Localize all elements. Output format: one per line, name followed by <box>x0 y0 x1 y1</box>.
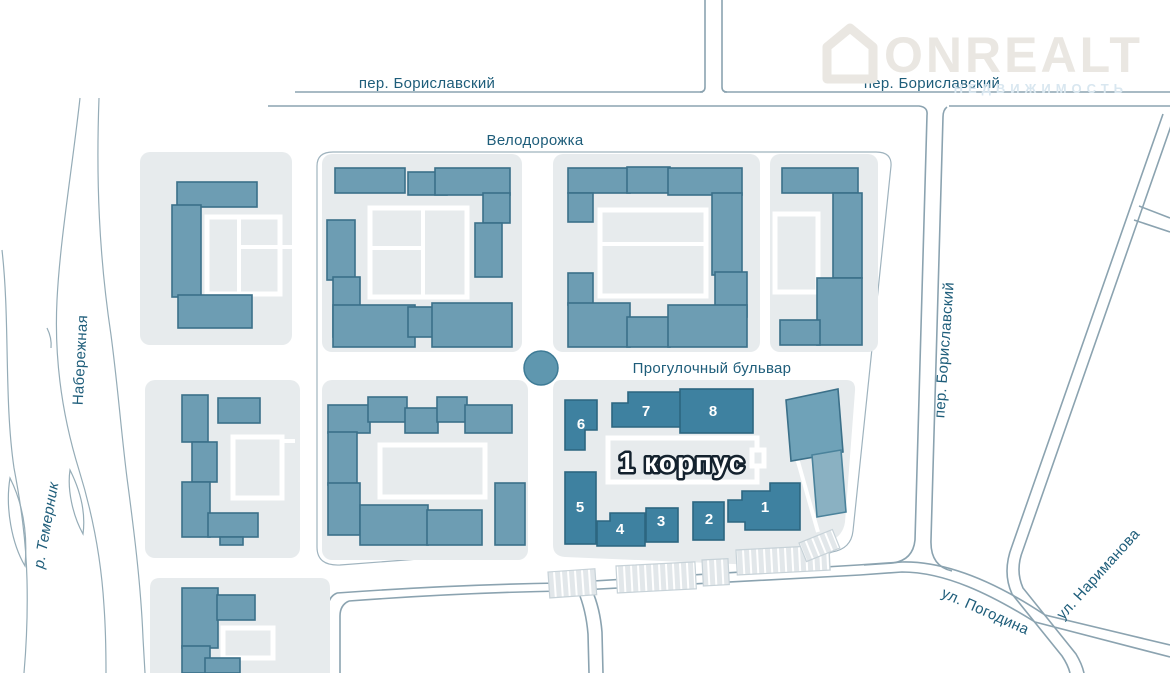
street-label-narimanova: ул. Нариманова <box>1053 525 1143 623</box>
korpus-1-label: 1 корпус <box>619 447 746 478</box>
block-mid-left <box>145 380 300 558</box>
site-plan-map: 6 7 8 5 4 3 2 1 1 корпус пер. Бориславск… <box>0 0 1170 673</box>
building-6-number: 6 <box>577 416 585 433</box>
building-8-number: 8 <box>709 403 717 420</box>
street-label-borislavsky-left: пер. Бориславский <box>359 75 495 92</box>
site-plan-screenshot: 6 7 8 5 4 3 2 1 1 корпус пер. Бориславск… <box>0 0 1170 673</box>
building-3-number: 3 <box>657 513 665 530</box>
building-4-number: 4 <box>616 521 625 538</box>
river-label-temernik: р. Темерник <box>30 480 62 571</box>
block-top-right <box>770 154 878 352</box>
logo-title: ONREALT <box>884 27 1143 83</box>
block-top-mid-right <box>553 154 760 352</box>
street-label-velodorozhka: Велодорожка <box>487 132 584 149</box>
street-label-naberezhnaya: Набережная <box>70 315 92 406</box>
angled-building-upper <box>786 389 843 461</box>
building-7-number: 7 <box>642 403 650 420</box>
building-2-number: 2 <box>705 511 713 528</box>
block-mid-middle <box>322 380 528 560</box>
street-label-progulochny-bulvar: Прогулочный бульвар <box>633 360 792 377</box>
street-label-borislavsky-vertical: пер. Бориславский <box>931 281 957 418</box>
house-icon <box>827 28 873 79</box>
roundabout <box>524 351 558 385</box>
building-1-number: 1 <box>761 499 769 516</box>
logo-subtitle: НЕДВИЖИМОСТЬ <box>954 81 1128 96</box>
building-5-number: 5 <box>576 499 584 516</box>
angled-building-lower <box>812 450 846 517</box>
block-top-mid-left <box>322 154 522 352</box>
block-bottom-left <box>150 578 330 673</box>
block-top-left <box>140 152 297 345</box>
